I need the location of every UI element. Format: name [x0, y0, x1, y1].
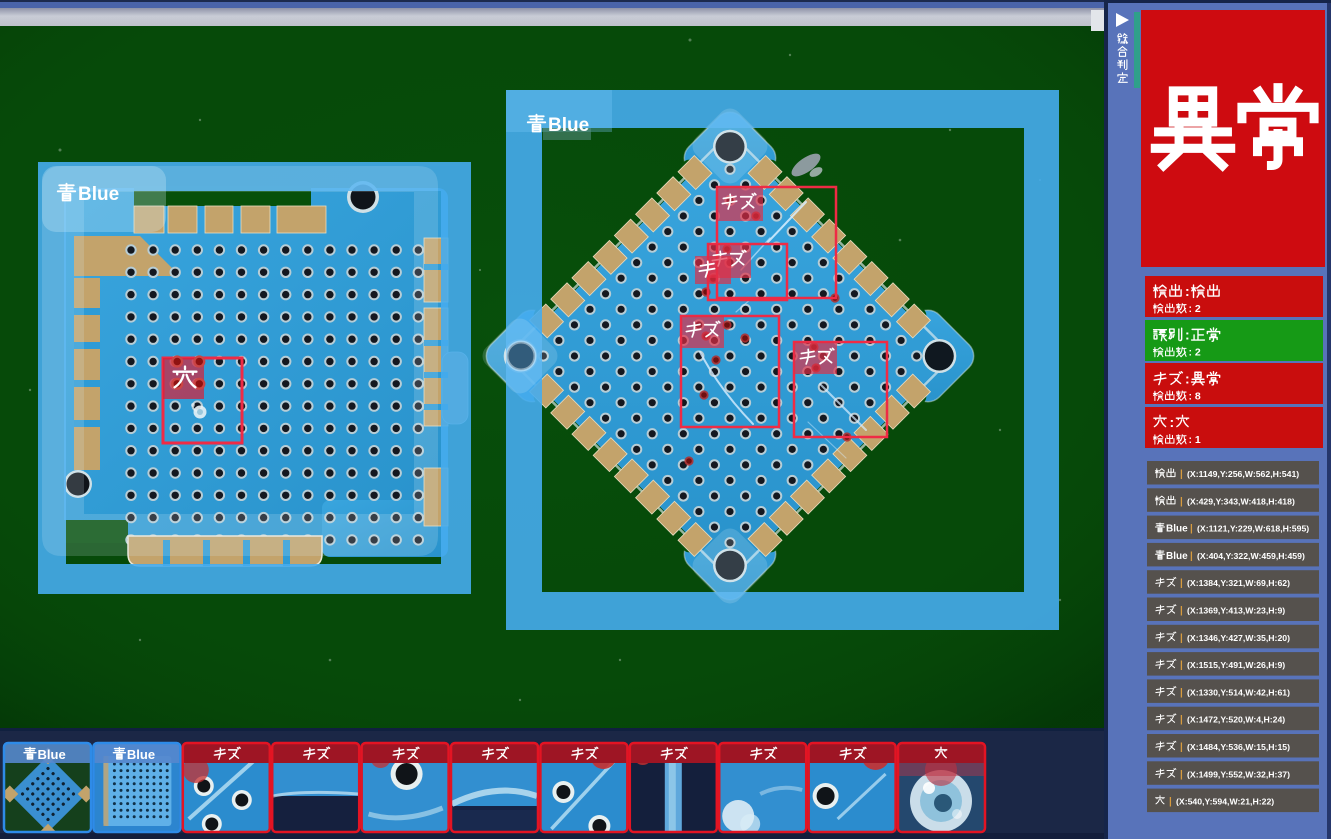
svg-text:(X:1515,Y:491,W:26,H:9): (X:1515,Y:491,W:26,H:9) — [1187, 660, 1285, 670]
svg-text:(X:1472,Y:520,W:4,H:24): (X:1472,Y:520,W:4,H:24) — [1187, 715, 1285, 725]
svg-text:(X:1346,Y:427,W:35,H:20): (X:1346,Y:427,W:35,H:20) — [1187, 633, 1290, 643]
svg-text:Blue: Blue — [548, 115, 589, 136]
svg-text:(X:429,Y:343,W:418,H:418): (X:429,Y:343,W:418,H:418) — [1187, 496, 1295, 506]
svg-text:|: | — [1180, 496, 1183, 507]
svg-text:Blue: Blue — [78, 184, 119, 205]
svg-text:(X:1330,Y:514,W:42,H:61): (X:1330,Y:514,W:42,H:61) — [1187, 687, 1290, 697]
svg-text:|: | — [1190, 524, 1193, 535]
svg-text:|: | — [1180, 769, 1183, 780]
svg-text::: : — [1170, 414, 1175, 430]
svg-text:|: | — [1180, 469, 1183, 480]
svg-text::: : — [1185, 283, 1190, 299]
svg-text:|: | — [1180, 742, 1183, 753]
svg-text:|: | — [1180, 660, 1183, 671]
svg-text:Blue: Blue — [1166, 551, 1188, 562]
svg-text:(X:404,Y:322,W:459,H:459): (X:404,Y:322,W:459,H:459) — [1197, 551, 1305, 561]
svg-text:(X:1121,Y:229,W:618,H:595): (X:1121,Y:229,W:618,H:595) — [1197, 524, 1309, 534]
svg-text:|: | — [1180, 606, 1183, 617]
svg-text:|: | — [1180, 633, 1183, 644]
svg-text::: : — [1185, 370, 1190, 386]
svg-text:(X:1149,Y:256,W:562,H:541): (X:1149,Y:256,W:562,H:541) — [1187, 469, 1299, 479]
svg-text:(X:1384,Y:321,W:69,H:62): (X:1384,Y:321,W:69,H:62) — [1187, 578, 1290, 588]
svg-text:|: | — [1190, 551, 1193, 562]
svg-text:|: | — [1169, 797, 1172, 808]
svg-text:: 2: : 2 — [1189, 303, 1201, 315]
svg-text:(X:1499,Y:552,W:32,H:37): (X:1499,Y:552,W:32,H:37) — [1187, 769, 1290, 779]
svg-text:: 8: : 8 — [1189, 390, 1201, 402]
svg-text:Blue: Blue — [1166, 524, 1188, 535]
svg-text:: 2: : 2 — [1189, 347, 1201, 359]
svg-text:Blue: Blue — [127, 747, 155, 762]
svg-text:(X:540,Y:594,W:21,H:22): (X:540,Y:594,W:21,H:22) — [1176, 797, 1274, 807]
svg-text:|: | — [1180, 715, 1183, 726]
svg-text:(X:1484,Y:536,W:15,H:15): (X:1484,Y:536,W:15,H:15) — [1187, 742, 1290, 752]
svg-text:(X:1369,Y:413,W:23,H:9): (X:1369,Y:413,W:23,H:9) — [1187, 606, 1285, 616]
svg-text:Blue: Blue — [38, 747, 66, 762]
svg-text:: 1: : 1 — [1189, 434, 1201, 446]
svg-text::: : — [1185, 327, 1190, 343]
svg-text:|: | — [1180, 687, 1183, 698]
svg-text:|: | — [1180, 578, 1183, 589]
